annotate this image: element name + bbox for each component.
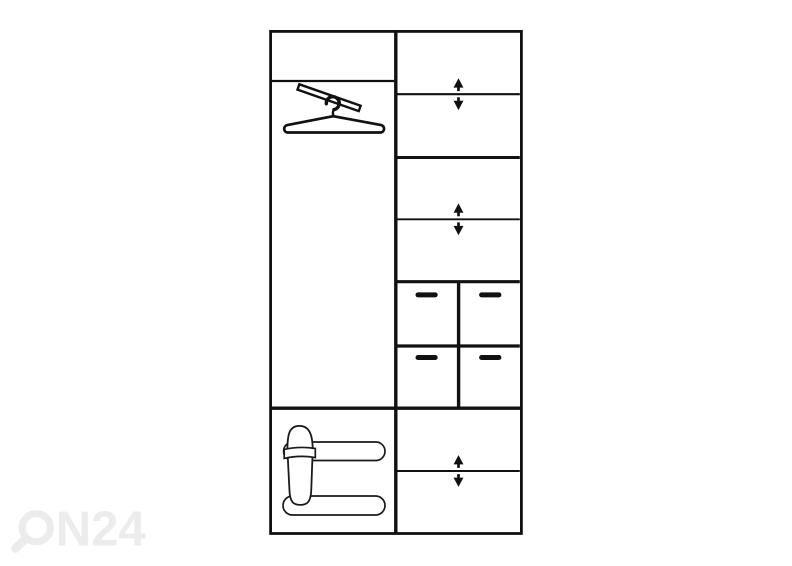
svg-text:N24: N24 — [56, 503, 146, 557]
